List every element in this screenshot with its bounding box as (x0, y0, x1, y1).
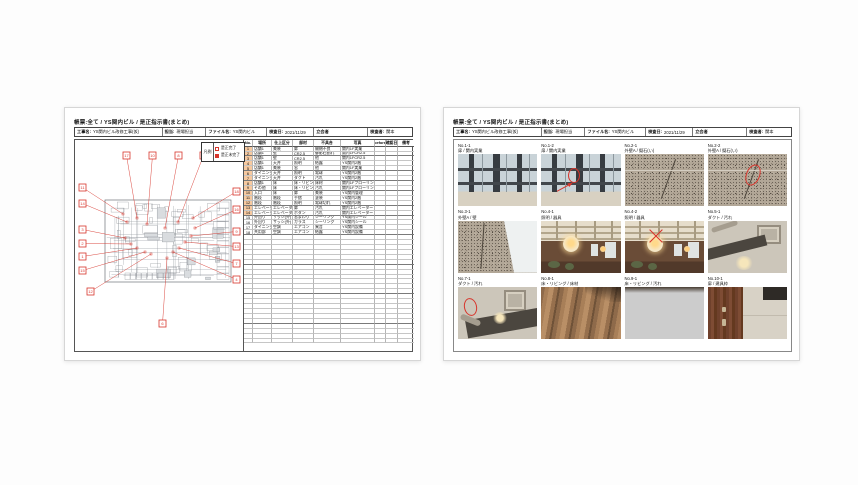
photo-duct2 (458, 287, 537, 339)
photo-cell: No.7-1ダクト / 汚れ (458, 276, 537, 339)
plan-callout: 18 (233, 188, 240, 195)
legend-box: 凡例 是正完了是正未完了 (201, 142, 245, 162)
legend-label: 凡例 (202, 143, 214, 161)
plan-callout: 16 (233, 206, 240, 213)
photo-wood-light (625, 287, 704, 339)
svg-text:17: 17 (124, 153, 129, 158)
photo-granite (625, 154, 704, 206)
manager-value: 現場担当 (176, 129, 193, 135)
file-label: ファイル名: (208, 129, 230, 135)
project-label: 工事名: (77, 129, 91, 135)
svg-text:13: 13 (234, 244, 239, 249)
plan-callout: 12 (87, 288, 94, 295)
photo-caption: 扉 / 関内実業 (458, 148, 537, 153)
column-header: 写真 (341, 140, 375, 147)
photo-caption: 扉 / 関内実業 (541, 148, 620, 153)
photo-wood (541, 287, 620, 339)
photo-caption: 扉 / 建具枠 (708, 281, 787, 286)
plan-callout: 1 (79, 253, 86, 260)
date-label: 検査日: (648, 129, 662, 135)
manager-label: 担当: (165, 129, 175, 135)
date-value: 2021/11/29 (664, 130, 685, 135)
plan-callout: 6 (159, 320, 166, 327)
column-header: No. (244, 140, 253, 147)
header-file: ファイル名: YS関内ビル (206, 128, 267, 136)
photo-caption: 照明 / 器具 (541, 215, 620, 220)
plan-callout: 15 (79, 267, 86, 274)
photo-cell: No.4-1照明 / 器具 (541, 209, 620, 272)
date-label: 検査日: (269, 129, 283, 135)
project-value: YS関内ビル改修工事(仮) (472, 129, 518, 135)
defect-list-table: No.場所仕上区分部材不具合写真before確認日備考1店舗1美装扉開閉不良関内… (243, 140, 414, 351)
svg-text:10: 10 (150, 153, 155, 158)
plan-callout: 11 (79, 184, 86, 191)
manager-value: 現場担当 (555, 129, 572, 135)
photo-cell: No.3-1外壁A / 壁 (458, 209, 537, 272)
manager-label: 担当: (544, 129, 554, 135)
photo-caption: ダクト / 汚れ (708, 215, 787, 220)
witness-label: 立会者 (316, 129, 329, 135)
file-value: YS関内ビル (612, 129, 634, 135)
file-value: YS関内ビル (233, 129, 255, 135)
header-witness: 立会者 (314, 128, 368, 136)
row-cell (253, 339, 272, 344)
column-header: 部材 (293, 140, 314, 147)
legend-item: 是正未完了 (215, 153, 243, 158)
legend-swatch-outline (215, 147, 219, 151)
page-title: 帳票:全て / YS関内ビル / 是正指示書(まとめ) (453, 118, 568, 126)
plan-callout: 7 (233, 260, 240, 267)
header-inspector: 検査者: 関本 (368, 128, 412, 136)
plan-callout: 3 (79, 226, 86, 233)
photo-door-glass (541, 154, 620, 206)
photo-cell: No.1-2扉 / 関内実業 (541, 143, 620, 206)
plan-callout: 2 (79, 240, 86, 247)
inspector-label: 検査者: (749, 129, 763, 135)
column-header: 仕上区分 (272, 140, 293, 147)
plan-callout: 10 (149, 152, 156, 159)
header-date: 検査日: 2021/11/29 (646, 128, 693, 136)
svg-text:15: 15 (80, 268, 85, 273)
column-header: 不具合 (314, 140, 341, 147)
photo-duct (708, 221, 787, 273)
report-page-plan[interactable]: 帳票:全て / YS関内ビル / 是正指示書(まとめ) 工事名: YS関内ビル改… (64, 107, 421, 361)
column-header: 確認日 (386, 140, 398, 147)
photo-cell: No.2-2外壁A / 擬石(い) (708, 143, 787, 206)
inspector-value: 関本 (386, 129, 394, 135)
photo-granite (708, 154, 787, 206)
photo-caption: ダクト / 汚れ (458, 281, 537, 286)
file-label: ファイル名: (587, 129, 609, 135)
photo-grid: No.1-1扉 / 関内実業No.1-2扉 / 関内実業No.2-1外壁A / … (458, 143, 787, 339)
plan-callout: 8 (175, 152, 182, 159)
project-value: YS関内ビル改修工事(仮) (93, 129, 139, 135)
header-inspector: 検査者: 関本 (747, 128, 791, 136)
photo-cell: No.1-1扉 / 関内実業 (458, 143, 537, 206)
witness-label: 立会者 (695, 129, 708, 135)
photo-grid-frame: No.1-1扉 / 関内実業No.1-2扉 / 関内実業No.2-1外壁A / … (453, 139, 792, 352)
report-page-photos[interactable]: 帳票:全て / YS関内ビル / 是正指示書(まとめ) 工事名: YS関内ビル改… (443, 107, 800, 361)
header-manager: 担当: 現場担当 (542, 128, 586, 136)
column-header: 場所 (253, 140, 272, 147)
row-cell (341, 339, 375, 344)
header-info-table: 工事名: YS関内ビル改修工事(仮) 担当: 現場担当 ファイル名: YS関内ビ… (453, 127, 792, 137)
svg-text:18: 18 (234, 189, 239, 194)
row-cell (375, 339, 386, 344)
row-cell (314, 339, 341, 344)
photo-cell: No.8-1床・リビング / 床材 (541, 276, 620, 339)
inspector-label: 検査者: (370, 129, 384, 135)
row-cell (272, 339, 293, 344)
plan-callout: 14 (79, 200, 86, 207)
legend-item: 是正完了 (215, 146, 243, 151)
plan-callout: 4 (233, 276, 240, 283)
photo-caption: 床・リビング / 床材 (541, 281, 620, 286)
header-project: 工事名: YS関内ビル改修工事(仮) (454, 128, 542, 136)
project-label: 工事名: (456, 129, 470, 135)
legend-swatch-filled (215, 154, 219, 158)
column-header: 備考 (398, 140, 414, 147)
column-header: before (375, 140, 386, 147)
photo-cell: No.2-1外壁A / 擬石(い) (625, 143, 704, 206)
header-project: 工事名: YS関内ビル改修工事(仮) (75, 128, 163, 136)
table-row (244, 339, 414, 344)
svg-text:16: 16 (234, 207, 239, 212)
header-witness: 立会者 (693, 128, 747, 136)
page-title: 帳票:全て / YS関内ビル / 是正指示書(まとめ) (74, 118, 189, 126)
legend-text: 是正未完了 (221, 153, 240, 158)
photo-restaurant (541, 221, 620, 273)
photo-door-wood (708, 287, 787, 339)
header-manager: 担当: 現場担当 (163, 128, 207, 136)
photo-restaurant (625, 221, 704, 273)
photo-caption: 床・リビング / 汚れ (625, 281, 704, 286)
photo-cell: No.10-1扉 / 建具枠 (708, 276, 787, 339)
plan-callout: 9 (233, 228, 240, 235)
row-cell (398, 339, 414, 344)
photo-door-glass (458, 154, 537, 206)
plan-and-table-frame: 171085111432115121816913746 凡例 是正完了是正未完了… (74, 139, 413, 352)
photo-cell: No.9-1床・リビング / 汚れ (625, 276, 704, 339)
row-cell (386, 339, 398, 344)
photo-granite-corner (458, 221, 537, 273)
document-viewer-canvas: 帳票:全て / YS関内ビル / 是正指示書(まとめ) 工事名: YS関内ビル改… (0, 0, 858, 485)
svg-text:12: 12 (88, 289, 93, 294)
header-file: ファイル名: YS関内ビル (585, 128, 646, 136)
plan-callout: 17 (123, 152, 130, 159)
photo-cell: No.4-2照明 / 器具 (625, 209, 704, 272)
photo-caption: 照明 / 器具 (625, 215, 704, 220)
legend-text: 是正完了 (221, 146, 236, 151)
floor-plan-drawing: 171085111432115121816913746 (75, 140, 243, 351)
date-value: 2021/11/29 (285, 130, 306, 135)
header-date: 検査日: 2021/11/29 (267, 128, 314, 136)
plan-callout: 13 (233, 243, 240, 250)
photo-caption: 外壁A / 壁 (458, 215, 537, 220)
row-cell (293, 339, 314, 344)
table-header-row: No.場所仕上区分部材不具合写真before確認日備考 (244, 140, 414, 147)
photo-caption: 外壁A / 擬石(い) (625, 148, 704, 153)
inspector-value: 関本 (765, 129, 773, 135)
photo-cell: No.5-1ダクト / 汚れ (708, 209, 787, 272)
header-info-table: 工事名: YS関内ビル改修工事(仮) 担当: 現場担当 ファイル名: YS関内ビ… (74, 127, 413, 137)
floor-plan-area: 171085111432115121816913746 凡例 是正完了是正未完了 (75, 140, 243, 351)
photo-caption: 外壁A / 擬石(い) (708, 148, 787, 153)
row-number-cell (244, 339, 253, 344)
svg-text:14: 14 (80, 201, 85, 206)
